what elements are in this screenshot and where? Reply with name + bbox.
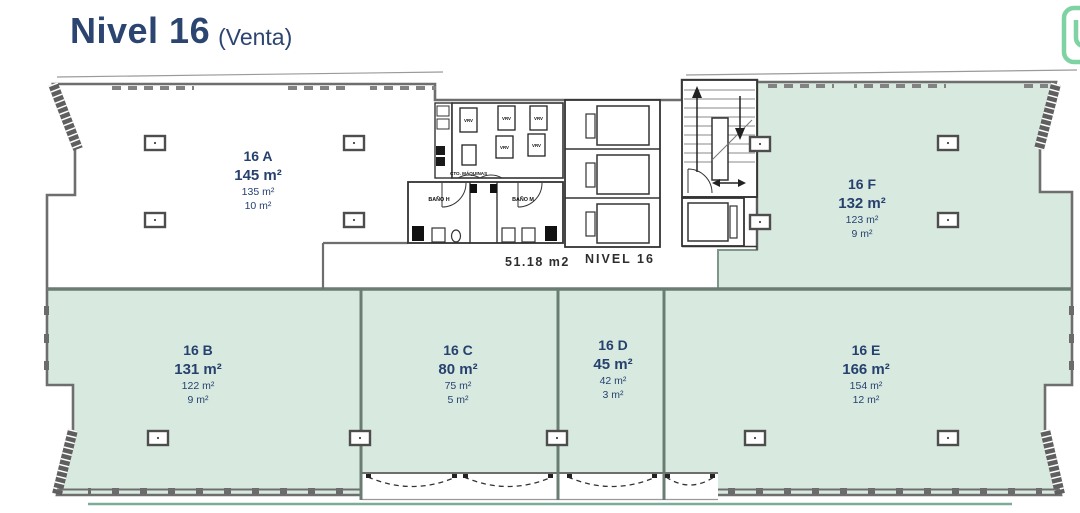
vrv-label: VRV: [502, 116, 511, 121]
unit-name: 16 B: [128, 342, 268, 360]
staircase: [682, 80, 757, 197]
vrv-label: VRV: [534, 116, 543, 121]
corridor-area-label: 51.18 m2: [505, 255, 570, 269]
unit-label-16b[interactable]: 16 B 131 m² 122 m² 9 m²: [128, 342, 268, 408]
bathrooms: BAÑO H BAÑO M: [408, 182, 563, 243]
unit-label-16f[interactable]: 16 F 132 m² 123 m² 9 m²: [792, 176, 932, 242]
unit-sub-area: 123 m²: [792, 214, 932, 227]
vrv-label: VRV: [500, 145, 509, 150]
vrv-label: VRV: [464, 118, 473, 123]
elevator-bank: [565, 100, 660, 247]
unit-sub-area: 75 m²: [388, 380, 528, 393]
elevator-car: [597, 204, 649, 243]
roof-overhang-lines: [57, 70, 1077, 77]
unit-label-16a[interactable]: 16 A 145 m² 135 m² 10 m²: [188, 148, 328, 214]
unit-sub-area: 10 m²: [188, 200, 328, 213]
brand-logo-icon: [1064, 8, 1080, 62]
unit-total-area: 166 m²: [796, 361, 936, 380]
unit-label-16c[interactable]: 16 C 80 m² 75 m² 5 m²: [388, 342, 528, 408]
wc-fixture: [545, 226, 557, 241]
unit-sub-area: 12 m²: [796, 394, 936, 407]
unit-name: 16 F: [792, 176, 932, 194]
bath-men-label: BAÑO H: [428, 196, 449, 203]
elevator-car: [597, 106, 649, 145]
unit-sub-area: 3 m²: [543, 389, 683, 402]
unit-total-area: 80 m²: [388, 361, 528, 380]
unit-sub-area: 122 m²: [128, 380, 268, 393]
elevator-car: [597, 155, 649, 194]
vrv-machine-room: VRV VRV VRV VRV VRV CTO. MÁQUINAS: [435, 103, 563, 178]
level-title-suffix: (Venta): [218, 24, 292, 51]
bath-women-label: BAÑO M: [512, 196, 534, 203]
unit-total-area: 132 m²: [792, 195, 932, 214]
balcony-strip: [361, 473, 718, 500]
unit-sub-area: 9 m²: [128, 394, 268, 407]
unit-total-area: 45 m²: [543, 356, 683, 375]
wc-fixture: [412, 226, 424, 241]
vrv-label: VRV: [532, 143, 541, 148]
unit-sub-area: 9 m²: [792, 228, 932, 241]
unit-sub-area: 42 m²: [543, 375, 683, 388]
page-title: Nivel 16(Venta): [70, 10, 292, 52]
unit-total-area: 131 m²: [128, 361, 268, 380]
unit-name: 16 D: [543, 337, 683, 355]
unit-name: 16 C: [388, 342, 528, 360]
unit-label-16e[interactable]: 16 E 166 m² 154 m² 12 m²: [796, 342, 936, 408]
unit-name: 16 A: [188, 148, 328, 166]
unit-name: 16 E: [796, 342, 936, 360]
corridor-level-label: NIVEL 16: [585, 252, 655, 266]
unit-sub-area: 135 m²: [188, 186, 328, 199]
floorplan-page: VRV VRV VRV VRV VRV CTO. MÁQUINAS BAÑO H…: [0, 0, 1080, 513]
level-title: Nivel 16: [70, 10, 210, 51]
unit-sub-area: 5 m²: [388, 394, 528, 407]
unit-total-area: 145 m²: [188, 167, 328, 186]
unit-label-16d[interactable]: 16 D 45 m² 42 m² 3 m²: [543, 337, 683, 403]
unit-sub-area: 154 m²: [796, 380, 936, 393]
service-elevator: [682, 198, 757, 247]
